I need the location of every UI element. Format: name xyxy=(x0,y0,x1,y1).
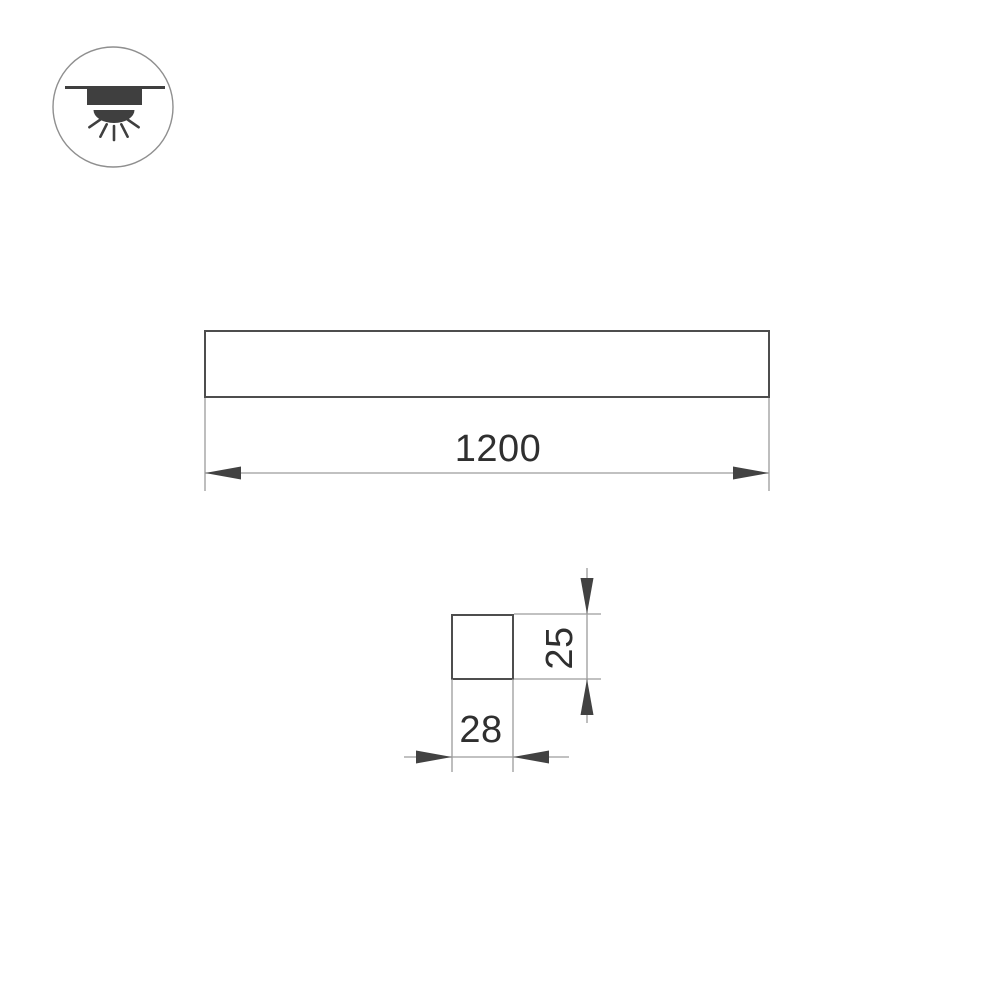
technical-drawing-canvas: 1200 25 28 xyxy=(0,0,1000,1000)
front-view: 1200 xyxy=(205,331,769,491)
length-dimension-label: 1200 xyxy=(455,428,542,470)
fixture-outline xyxy=(205,331,769,397)
luminaire-body xyxy=(87,87,142,105)
arrowhead-width-right xyxy=(513,751,549,764)
arrowhead-bottom xyxy=(581,679,594,715)
height-dimension-label: 25 xyxy=(539,626,581,669)
surface-ceiling-light-icon xyxy=(53,47,173,167)
dimension-drawing-svg: 1200 25 28 xyxy=(0,0,1000,1000)
arrowhead-width-left xyxy=(416,751,452,764)
arrowhead-left xyxy=(205,467,241,480)
arrowhead-top xyxy=(581,578,594,614)
light-ray xyxy=(89,119,101,127)
light-ray xyxy=(100,124,106,136)
section-view: 25 28 xyxy=(404,568,601,772)
light-ray xyxy=(121,124,127,136)
arrowhead-right xyxy=(733,467,769,480)
width-dimension-label: 28 xyxy=(459,709,502,751)
light-ray xyxy=(127,119,139,127)
profile-outline xyxy=(452,615,513,679)
icon-circle-border xyxy=(53,47,173,167)
